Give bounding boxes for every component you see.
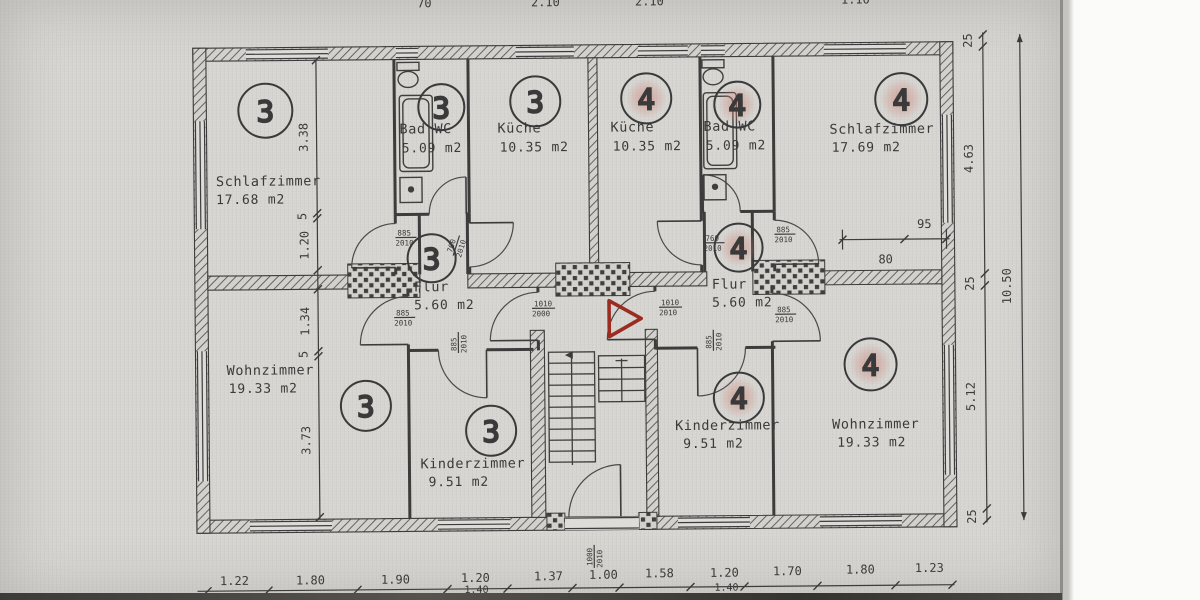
window-left-wohnzimmer3 bbox=[196, 351, 208, 481]
svg-text:3: 3 bbox=[432, 91, 450, 125]
floorplan-drawing: 3 3 3 4 4 4 3 4 3 3 4 4 Schlafzimmer17.6… bbox=[0, 0, 1200, 600]
svg-text:2.10: 2.10 bbox=[531, 0, 560, 9]
svg-text:3: 3 bbox=[526, 85, 544, 119]
window-top-schlafzimmer3 bbox=[246, 48, 328, 60]
svg-text:Kinderzimmer: Kinderzimmer bbox=[675, 417, 780, 434]
svg-text:1.23: 1.23 bbox=[915, 561, 944, 575]
svg-text:80: 80 bbox=[878, 252, 893, 266]
sink-bad3 bbox=[400, 177, 422, 202]
room-label-kinderzimmer4: Kinderzimmer9.51 m2 bbox=[675, 417, 780, 452]
svg-text:1.34: 1.34 bbox=[298, 307, 312, 336]
door-kueche3 bbox=[469, 223, 513, 267]
svg-text:2010: 2010 bbox=[595, 549, 604, 568]
window-bottom-wohnzimmer3 bbox=[250, 520, 332, 532]
svg-text:1.80: 1.80 bbox=[846, 562, 875, 576]
svg-text:885: 885 bbox=[704, 335, 713, 349]
svg-text:1.37: 1.37 bbox=[534, 569, 563, 583]
svg-text:2010: 2010 bbox=[459, 334, 468, 353]
svg-text:2010: 2010 bbox=[704, 244, 723, 253]
svg-text:Bad WC: Bad WC bbox=[399, 121, 452, 137]
svg-text:1.70: 1.70 bbox=[773, 564, 802, 578]
window-right-wohnzimmer4 bbox=[943, 345, 955, 475]
toilet-bad4 bbox=[702, 60, 724, 85]
door-bad3 bbox=[429, 177, 466, 214]
window-left-schlafzimmer3 bbox=[194, 121, 206, 229]
svg-text:5: 5 bbox=[296, 351, 310, 358]
unit-circle-wohnzimmer3: 3 bbox=[341, 381, 391, 431]
svg-text:2010: 2010 bbox=[394, 318, 413, 327]
svg-text:2010: 2010 bbox=[714, 332, 723, 351]
door-size-label: 8852010 bbox=[395, 228, 416, 247]
svg-text:4: 4 bbox=[637, 82, 655, 116]
svg-text:5.09 m2: 5.09 m2 bbox=[402, 141, 463, 157]
svg-text:4: 4 bbox=[728, 89, 746, 123]
svg-text:25: 25 bbox=[965, 509, 979, 524]
window-top-bad4 bbox=[701, 45, 725, 56]
window-top-bad3 bbox=[396, 47, 418, 58]
door-size-label: 10002010 bbox=[585, 545, 604, 568]
door-size-label: 10102000 bbox=[532, 299, 555, 318]
door-size-label: 8852010 bbox=[449, 332, 468, 353]
svg-text:1.22: 1.22 bbox=[220, 574, 249, 588]
room-label-schlafzimmer4: Schlafzimmer17.69 m2 bbox=[829, 121, 934, 156]
svg-text:1.20: 1.20 bbox=[297, 231, 311, 260]
door-size-label: 8852010 bbox=[394, 308, 415, 327]
svg-text:17.69 m2: 17.69 m2 bbox=[832, 140, 901, 156]
svg-text:25: 25 bbox=[963, 276, 977, 291]
svg-text:Wohnzimmer: Wohnzimmer bbox=[832, 416, 919, 433]
room-label-wohnzimmer3: Wohnzimmer19.33 m2 bbox=[227, 362, 315, 397]
dimension-right-chain: 25 4.63 25 5.12 25 10.50 bbox=[961, 30, 1027, 525]
svg-text:2000: 2000 bbox=[532, 309, 551, 318]
svg-text:5: 5 bbox=[295, 213, 309, 220]
wall-junction-block bbox=[547, 513, 565, 530]
door-bad4 bbox=[703, 175, 740, 212]
svg-text:1.58: 1.58 bbox=[645, 566, 674, 580]
room-labels: Schlafzimmer17.68 m2 Bad WC5.09 m2 Küche… bbox=[215, 117, 937, 492]
room-label-schlafzimmer3: Schlafzimmer17.68 m2 bbox=[216, 173, 321, 208]
svg-text:5.60 m2: 5.60 m2 bbox=[712, 295, 773, 311]
svg-text:1000: 1000 bbox=[585, 547, 594, 566]
room-label-bad4: Bad WC5.09 m2 bbox=[703, 118, 766, 154]
svg-text:9.51 m2: 9.51 m2 bbox=[683, 437, 744, 453]
svg-text:70: 70 bbox=[417, 0, 432, 10]
room-label-kueche3: Küche10.35 m2 bbox=[497, 120, 568, 156]
svg-text:3: 3 bbox=[256, 95, 274, 129]
svg-text:Schlafzimmer: Schlafzimmer bbox=[829, 121, 934, 138]
room-label-kinderzimmer3: Kinderzimmer9.51 m2 bbox=[420, 455, 525, 490]
window-right-schlafzimmer4 bbox=[941, 115, 953, 223]
door-size-label: 7602010 bbox=[445, 233, 469, 259]
svg-text:4.63: 4.63 bbox=[962, 144, 976, 173]
svg-text:1010: 1010 bbox=[534, 299, 553, 308]
door-size-label: 8852010 bbox=[775, 305, 796, 324]
door-size-label: 8852010 bbox=[774, 225, 795, 244]
svg-text:Küche: Küche bbox=[497, 120, 541, 136]
door-schlafzimmer3 bbox=[351, 224, 395, 268]
window-bottom-wohnzimmer4 bbox=[820, 515, 902, 527]
svg-text:95: 95 bbox=[917, 217, 932, 231]
svg-text:1010: 1010 bbox=[661, 298, 680, 307]
svg-text:Kinderzimmer: Kinderzimmer bbox=[420, 455, 525, 472]
svg-text:2010: 2010 bbox=[395, 238, 414, 247]
wall-junction-block bbox=[753, 260, 825, 295]
dimension-95-80: 95 80 bbox=[838, 217, 950, 267]
door-size-label: 7602010 bbox=[703, 234, 724, 253]
svg-text:5.09 m2: 5.09 m2 bbox=[706, 138, 767, 154]
wall-junction-block bbox=[556, 263, 630, 297]
svg-text:25: 25 bbox=[961, 33, 975, 48]
svg-text:3: 3 bbox=[482, 415, 500, 449]
svg-text:Küche: Küche bbox=[610, 119, 654, 135]
svg-text:885: 885 bbox=[776, 225, 790, 234]
svg-text:4: 4 bbox=[862, 348, 880, 382]
stair-walkline bbox=[571, 355, 572, 465]
svg-text:10.35 m2: 10.35 m2 bbox=[500, 140, 569, 156]
svg-text:17.68 m2: 17.68 m2 bbox=[216, 193, 285, 209]
svg-text:Bad WC: Bad WC bbox=[703, 118, 756, 134]
room-label-kueche4: Küche10.35 m2 bbox=[610, 119, 681, 155]
door-kueche4 bbox=[657, 221, 701, 265]
door-building-entrance bbox=[564, 464, 639, 530]
red-triangle-marker bbox=[609, 300, 641, 336]
svg-text:3: 3 bbox=[357, 390, 375, 424]
window-top-schlafzimmer4 bbox=[824, 43, 906, 55]
svg-text:885: 885 bbox=[777, 305, 791, 314]
unit-circle-kinderzimmer3: 3 bbox=[466, 406, 516, 456]
svg-text:Schlafzimmer: Schlafzimmer bbox=[216, 173, 321, 190]
svg-text:10.35 m2: 10.35 m2 bbox=[613, 139, 682, 155]
svg-text:1.90: 1.90 bbox=[381, 572, 410, 586]
room-label-flur3: Flur5.60 m2 bbox=[414, 279, 475, 314]
room-label-wohnzimmer4: Wohnzimmer19.33 m2 bbox=[832, 416, 920, 451]
window-bottom-kinderzimmer3 bbox=[438, 519, 510, 531]
window-bottom-kinderzimmer4 bbox=[678, 516, 750, 528]
svg-text:2010: 2010 bbox=[659, 308, 678, 317]
svg-text:4: 4 bbox=[730, 231, 748, 265]
svg-text:Flur: Flur bbox=[712, 277, 747, 293]
door-size-label: 8852010 bbox=[704, 330, 723, 351]
svg-text:9.51 m2: 9.51 m2 bbox=[429, 475, 490, 491]
scan-bottom-edge bbox=[0, 593, 1062, 600]
staircase bbox=[548, 351, 645, 465]
svg-text:4: 4 bbox=[892, 83, 910, 117]
unit-circle-schlafzimmer3: 3 bbox=[238, 83, 292, 137]
svg-text:3.73: 3.73 bbox=[299, 426, 313, 455]
svg-text:3.38: 3.38 bbox=[296, 123, 310, 152]
svg-text:2.10: 2.10 bbox=[635, 0, 664, 8]
window-top-kueche4 bbox=[638, 45, 688, 56]
svg-text:5.12: 5.12 bbox=[964, 382, 978, 411]
dimension-top-partial: 70 2.10 2.10 1.10 bbox=[417, 0, 870, 10]
svg-text:1.10: 1.10 bbox=[841, 0, 870, 7]
door-kinderzimmer3 bbox=[438, 350, 486, 398]
svg-text:3: 3 bbox=[423, 242, 441, 276]
svg-text:885: 885 bbox=[396, 308, 410, 317]
svg-text:Flur: Flur bbox=[414, 279, 449, 295]
svg-text:19.33 m2: 19.33 m2 bbox=[229, 381, 298, 397]
svg-text:885: 885 bbox=[397, 228, 411, 237]
svg-text:5.60 m2: 5.60 m2 bbox=[414, 298, 475, 314]
wall-junction-block bbox=[639, 512, 657, 529]
svg-text:2010: 2010 bbox=[774, 235, 793, 244]
scanned-floorplan-page: 3 3 3 4 4 4 3 4 3 3 4 4 Schlafzimmer17.6… bbox=[0, 0, 1200, 600]
svg-text:1.80: 1.80 bbox=[296, 573, 325, 587]
sink-bad4 bbox=[704, 175, 726, 200]
svg-text:760: 760 bbox=[705, 234, 719, 243]
svg-text:1.20: 1.20 bbox=[461, 571, 490, 585]
window-top-kueche3 bbox=[516, 46, 574, 58]
toilet-bad3 bbox=[397, 62, 419, 87]
svg-text:19.33 m2: 19.33 m2 bbox=[837, 435, 906, 451]
svg-text:1.20: 1.20 bbox=[710, 566, 739, 580]
svg-text:2010: 2010 bbox=[775, 315, 794, 324]
unit-circle-kueche3: 3 bbox=[510, 76, 560, 126]
svg-text:1.00: 1.00 bbox=[589, 568, 618, 582]
svg-text:885: 885 bbox=[449, 337, 458, 351]
door-size-label: 10102010 bbox=[659, 298, 682, 317]
svg-text:Wohnzimmer: Wohnzimmer bbox=[227, 362, 314, 379]
svg-text:4: 4 bbox=[730, 381, 748, 415]
svg-text:10.50: 10.50 bbox=[1000, 268, 1014, 304]
